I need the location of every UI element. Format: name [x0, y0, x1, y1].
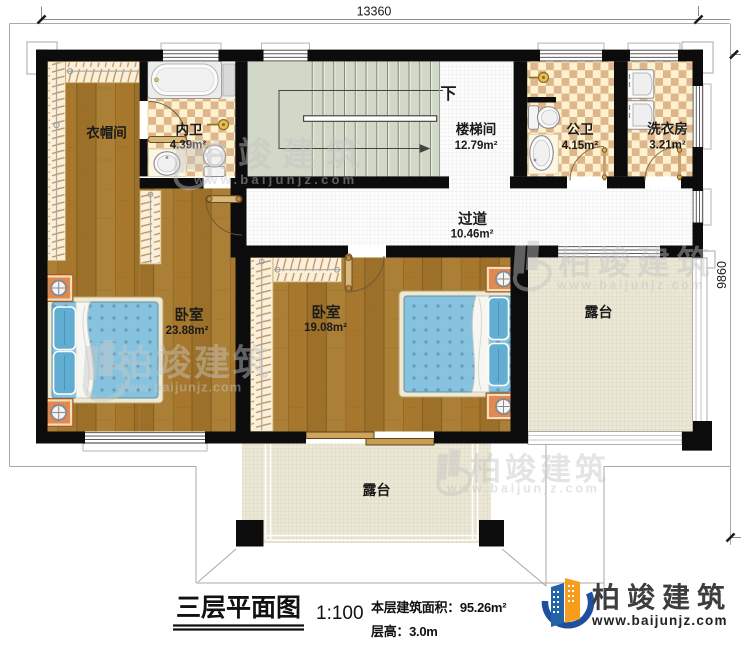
- svg-text:10.46m²: 10.46m²: [451, 229, 494, 241]
- svg-text:露台: 露台: [363, 482, 391, 498]
- svg-text:本层建筑面积：95.26m²: 本层建筑面积：95.26m²: [371, 600, 507, 615]
- svg-text:卧室: 卧室: [175, 306, 204, 324]
- svg-text:柏竣建筑: 柏竣建筑: [592, 581, 732, 613]
- svg-text:www.baijunjz.com: www.baijunjz.com: [193, 172, 357, 187]
- svg-text:洗衣房: 洗衣房: [647, 121, 688, 137]
- svg-text:露台: 露台: [585, 304, 613, 320]
- svg-text:下: 下: [440, 86, 456, 103]
- svg-text:过道: 过道: [458, 210, 487, 228]
- svg-text:层高：3.0m: 层高：3.0m: [371, 624, 438, 639]
- svg-text:3.21m²: 3.21m²: [649, 140, 686, 152]
- svg-text:9860: 9860: [715, 261, 729, 289]
- svg-text:12.79m²: 12.79m²: [455, 140, 498, 152]
- svg-text:1:100: 1:100: [316, 603, 364, 624]
- svg-text:23.88m²: 23.88m²: [166, 325, 209, 337]
- svg-text:卧室: 卧室: [312, 304, 341, 322]
- svg-text:19.08m²: 19.08m²: [304, 322, 347, 334]
- svg-text:楼梯间: 楼梯间: [456, 121, 497, 137]
- svg-text:衣帽间: 衣帽间: [86, 125, 127, 141]
- svg-text:公卫: 公卫: [567, 122, 595, 137]
- svg-text:4.15m²: 4.15m²: [562, 140, 599, 152]
- svg-text:www.baijunjz.com: www.baijunjz.com: [446, 482, 600, 496]
- svg-text:www.baijunjz.com: www.baijunjz.com: [116, 380, 242, 395]
- svg-text:www.baijunjz.com: www.baijunjz.com: [556, 278, 705, 292]
- svg-text:柏竣建筑: 柏竣建筑: [194, 135, 370, 174]
- svg-text:柏竣建筑: 柏竣建筑: [558, 244, 716, 281]
- svg-text:13360: 13360: [357, 5, 392, 19]
- svg-text:三层平面图: 三层平面图: [176, 594, 301, 622]
- svg-text:www.baijunjz.com: www.baijunjz.com: [591, 613, 728, 628]
- svg-text:柏竣建筑: 柏竣建筑: [117, 342, 271, 383]
